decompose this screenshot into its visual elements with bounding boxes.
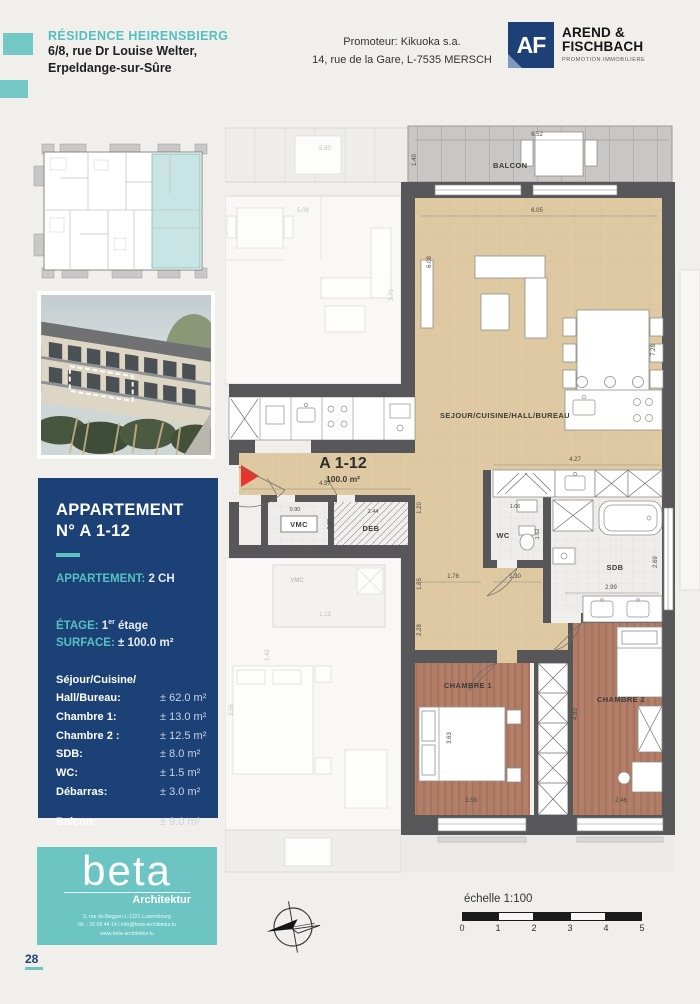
sdb-sink bbox=[553, 548, 575, 564]
room-row-debarras: Débarras: ± 3.0 m² bbox=[56, 783, 208, 802]
dimension-label: 5.80 bbox=[319, 146, 331, 152]
scale-ticks: 0 1 2 3 4 5 bbox=[462, 923, 648, 937]
brochure-page: RÉSIDENCE HEIRENSBIERG 6/8, rue Dr Louis… bbox=[0, 0, 700, 1004]
teal-dash-divider bbox=[56, 553, 80, 557]
closet-row bbox=[493, 470, 662, 497]
teal-square-decoration bbox=[0, 80, 28, 98]
room-row-chambre1: Chambre 1: ± 13.0 m² bbox=[56, 708, 208, 727]
room-label-wc: WC bbox=[496, 531, 509, 540]
room-label-vmc: VMC bbox=[290, 520, 308, 529]
room-label-vmc-neighbor: VMC bbox=[290, 578, 304, 584]
apartment-type-value: 2 CH bbox=[148, 573, 174, 585]
svg-text:6.05: 6.05 bbox=[531, 208, 543, 214]
apartment-title-line2: N° A 1-12 bbox=[56, 521, 208, 542]
residence-title-block: RÉSIDENCE HEIRENSBIERG 6/8, rue Dr Louis… bbox=[48, 29, 228, 77]
agency-logo-block: AF AREND & FISCHBACH PROMOTION IMMOBILIE… bbox=[508, 22, 645, 68]
building-render-image bbox=[37, 291, 215, 459]
teal-square-decoration bbox=[3, 33, 33, 55]
bureau-desk bbox=[421, 260, 433, 328]
scale-segment bbox=[534, 912, 570, 921]
arend-fischbach-logo-icon: AF bbox=[508, 22, 554, 68]
room-label-chambre2: CHAMBRE 2 bbox=[597, 695, 645, 704]
svg-text:2.44: 2.44 bbox=[368, 509, 379, 515]
svg-text:2.99: 2.99 bbox=[605, 585, 617, 591]
compass-north-icon bbox=[262, 894, 324, 956]
room-row-sejour: Séjour/Cuisine/ Hall/Bureau: ± 62.0 m² bbox=[56, 671, 208, 708]
dimension-label: 1.40 bbox=[412, 154, 418, 166]
floor-line: ÉTAGE: 1er étage bbox=[56, 618, 208, 635]
agency-tagline: PROMOTION IMMOBILIERE bbox=[562, 57, 645, 63]
scale-segment bbox=[606, 912, 642, 921]
room-value: ± 62.0 m² bbox=[160, 689, 206, 708]
room-label-sdb: SDB bbox=[606, 563, 623, 572]
scale-label: échelle 1:100 bbox=[464, 893, 648, 905]
svg-text:2.46: 2.46 bbox=[615, 798, 627, 804]
apartment-type-line: APPARTEMENT: 2 CH bbox=[56, 571, 208, 588]
promoter-line1: Promoteur: Kikuoka s.a. bbox=[303, 33, 501, 51]
svg-text:3.63: 3.63 bbox=[447, 732, 453, 744]
agency-name-block: AREND & FISCHBACH PROMOTION IMMOBILIERE bbox=[562, 22, 645, 63]
residence-address-line2: Erpeldange-sur-Sûre bbox=[48, 60, 228, 77]
juliet-railing bbox=[438, 837, 526, 842]
promoter-line2: 14, rue de la Gare, L-7535 MERSCH bbox=[303, 51, 501, 69]
sofa bbox=[525, 278, 547, 338]
dimension-label: 1.13 bbox=[319, 612, 331, 618]
coffee-table bbox=[481, 294, 509, 330]
floor-surface-block: ÉTAGE: 1er étage SURFACE: ± 100.0 m² bbox=[56, 618, 208, 653]
beta-logo-name: beta bbox=[37, 851, 217, 891]
apartment-type-label: APPARTEMENT: bbox=[56, 573, 145, 585]
svg-text:6.08: 6.08 bbox=[427, 256, 433, 268]
room-label-deb: DEB bbox=[362, 524, 379, 533]
kitchen-counter-row bbox=[229, 397, 415, 440]
beta-logo-subtitle: Architektur bbox=[37, 894, 217, 906]
svg-text:1.85: 1.85 bbox=[417, 578, 423, 590]
vanity bbox=[583, 596, 662, 622]
dimension-label: 1.42 bbox=[265, 649, 271, 661]
floor-value: 1er étage bbox=[102, 620, 148, 632]
closet-shaft bbox=[538, 663, 568, 815]
surface-line: SURFACE: ± 100.0 m² bbox=[56, 635, 208, 652]
residence-address-line1: 6/8, rue Dr Louise Welter, bbox=[48, 43, 228, 60]
corridor-floor bbox=[415, 470, 491, 568]
svg-text:1.06: 1.06 bbox=[510, 504, 521, 510]
svg-text:7.28: 7.28 bbox=[651, 344, 657, 356]
svg-text:1.62: 1.62 bbox=[535, 529, 541, 540]
svg-text:2.28: 2.28 bbox=[417, 624, 423, 636]
svg-text:4.27: 4.27 bbox=[569, 457, 581, 463]
building-edge-outside bbox=[680, 270, 700, 590]
dimension-label: 3.56 bbox=[229, 704, 235, 716]
scale-segment bbox=[570, 912, 606, 921]
dining-table bbox=[577, 310, 649, 402]
promoter-block: Promoteur: Kikuoka s.a. 14, rue de la Ga… bbox=[303, 33, 501, 69]
svg-text:1.30: 1.30 bbox=[509, 574, 521, 580]
svg-text:0.90: 0.90 bbox=[290, 507, 301, 513]
desk bbox=[632, 762, 662, 792]
scale-segment bbox=[498, 912, 534, 921]
scale-legend: échelle 1:100 0 1 2 3 4 5 bbox=[462, 893, 648, 937]
scale-bar bbox=[462, 912, 642, 921]
apartment-title-line1: APPARTEMENT bbox=[56, 500, 208, 521]
room-row-chambre2: Chambre 2 : ± 12.5 m² bbox=[56, 727, 208, 746]
svg-text:2.69: 2.69 bbox=[653, 556, 659, 568]
toilet bbox=[520, 534, 534, 550]
room-label-sejour: SEJOUR/CUISINE/HALL/BUREAU bbox=[440, 411, 570, 420]
sofa bbox=[475, 256, 545, 278]
agency-name-line2: FISCHBACH bbox=[562, 40, 645, 54]
dimension-label: 6.52 bbox=[531, 132, 543, 138]
svg-text:3.58: 3.58 bbox=[465, 798, 477, 804]
floor-label: ÉTAGE: bbox=[56, 620, 99, 632]
svg-text:1.20: 1.20 bbox=[417, 502, 423, 514]
apartment-info-panel: APPARTEMENT N° A 1-12 APPARTEMENT: 2 CH … bbox=[38, 478, 218, 818]
room-row-balcon: Balcon: ± 9.0 m² bbox=[56, 813, 208, 832]
unit-number-label: A 1-12 bbox=[319, 455, 367, 472]
svg-text:1.78: 1.78 bbox=[447, 574, 459, 580]
chair bbox=[618, 772, 630, 784]
svg-text:0.86: 0.86 bbox=[327, 519, 333, 530]
room-label: Séjour/Cuisine/ Hall/Bureau: bbox=[56, 671, 160, 708]
agency-name-line1: AREND & bbox=[562, 26, 645, 40]
page-number: 28 bbox=[25, 952, 43, 970]
room-label-balcon: BALCON bbox=[493, 161, 527, 170]
scale-segment bbox=[462, 912, 498, 921]
room-row-wc: WC: ± 1.5 m² bbox=[56, 764, 208, 783]
unit-area-label: 100.0 m² bbox=[326, 474, 360, 484]
dimension-label: 3.71 bbox=[389, 289, 395, 301]
beta-address: 5, rue de Beggen L-1221 Luxembourg tél. … bbox=[37, 913, 217, 938]
floor-overview-miniplan bbox=[30, 138, 220, 286]
surface-value: ± 100.0 m² bbox=[118, 637, 174, 649]
room-areas-list: Séjour/Cuisine/ Hall/Bureau: ± 62.0 m² C… bbox=[56, 671, 208, 833]
beta-architektur-logo: beta Architektur 5, rue de Beggen L-1221… bbox=[37, 847, 217, 945]
page-number-underline bbox=[25, 967, 43, 970]
balcony-area: 6.52 1.40 BALCON bbox=[408, 126, 672, 182]
miniplan-highlighted-unit bbox=[152, 154, 200, 268]
residence-name: RÉSIDENCE HEIRENSBIERG bbox=[48, 29, 228, 43]
room-row-sdb: SDB: ± 8.0 m² bbox=[56, 745, 208, 764]
kitchen-island bbox=[565, 390, 662, 430]
floor-plan: 5.80 5.08 3.71 4.97 VMC 1.13 3.56 1 bbox=[225, 110, 700, 880]
vmc-room: VMC bbox=[281, 516, 317, 532]
dimension-label: 5.08 bbox=[297, 208, 309, 214]
svg-text:4.57: 4.57 bbox=[319, 481, 331, 487]
room-label-chambre1: CHAMBRE 1 bbox=[444, 681, 492, 690]
surface-label: SURFACE: bbox=[56, 637, 115, 649]
svg-text:4.83: 4.83 bbox=[573, 708, 579, 720]
juliet-railing bbox=[577, 837, 663, 842]
